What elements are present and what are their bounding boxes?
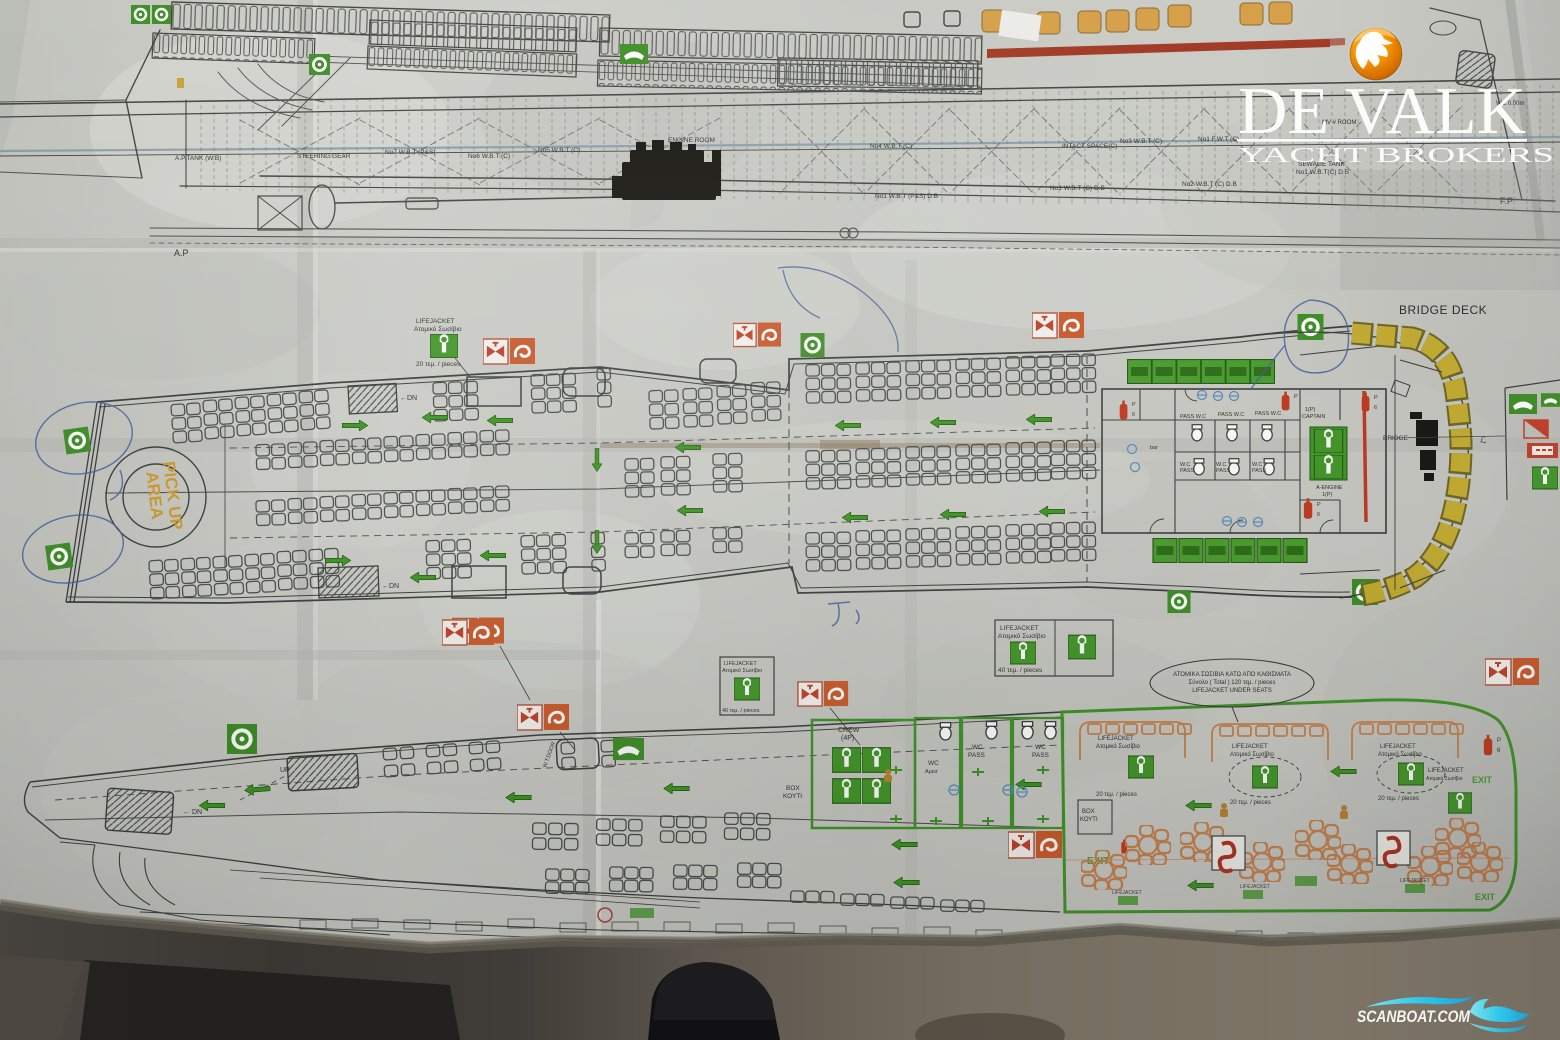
svg-text:DE VALK: DE VALK — [1238, 74, 1526, 148]
svg-text:SCANBOAT.COM: SCANBOAT.COM — [1357, 1007, 1471, 1026]
svg-text:YACHT BROKERS: YACHT BROKERS — [1238, 143, 1554, 167]
